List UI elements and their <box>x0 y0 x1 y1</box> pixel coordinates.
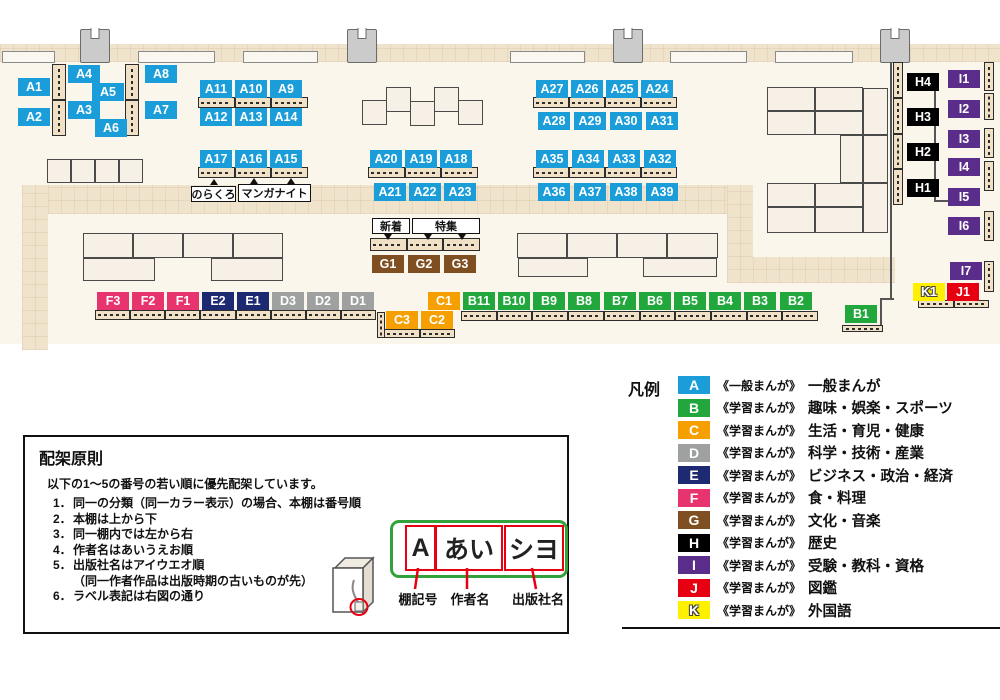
shelf-label-G2: G2 <box>408 255 440 273</box>
shelf-label-A2: A2 <box>18 108 50 126</box>
bookshelf-segment <box>984 62 994 91</box>
reading-table <box>233 233 283 258</box>
bookshelf-segment <box>842 325 883 332</box>
shelf-label-H4: H4 <box>907 73 939 91</box>
wall-window <box>510 51 585 63</box>
shelf-label-D1: D1 <box>342 292 374 310</box>
pillar-notch <box>891 28 900 39</box>
legend: 凡例 A《一般まんが》一般まんがB《学習まんが》趣味・娯楽・スポーツC《学習まん… <box>622 368 1000 630</box>
wall-window <box>2 51 55 63</box>
legend-series-type: 《学習まんが》 <box>717 534 801 551</box>
shelf-label-A25: A25 <box>606 80 638 98</box>
label-example-caption: 棚記号 <box>398 589 437 608</box>
reading-table <box>47 159 71 183</box>
legend-category-label: 生活・育児・健康 <box>808 420 924 441</box>
shelf-label-A23: A23 <box>444 183 476 201</box>
reading-table <box>183 233 233 258</box>
shelf-label-A15: A15 <box>270 150 302 168</box>
shelf-label-C3: C3 <box>386 311 418 329</box>
shelf-label-B8: B8 <box>568 292 600 310</box>
shelf-label-A39: A39 <box>646 183 678 201</box>
bookshelf-segment <box>568 311 604 321</box>
shelf-label-A13: A13 <box>235 108 267 126</box>
label-example-part: シヨ <box>504 525 564 571</box>
shelf-label-A12: A12 <box>200 108 232 126</box>
shelf-label-D3: D3 <box>272 292 304 310</box>
shelf-label-A6: A6 <box>95 119 127 137</box>
reading-table <box>567 233 617 258</box>
rule-text: 同一の分類（同一カラー表示）の場合、本棚は番号順 <box>73 496 361 510</box>
rule-text: 本棚は上から下 <box>73 512 157 526</box>
legend-category-label: 外国語 <box>808 600 852 621</box>
bookshelf-segment <box>130 310 165 320</box>
legend-category-label: 食・料理 <box>808 487 866 508</box>
reading-table <box>517 233 567 258</box>
reading-table <box>83 233 133 258</box>
bookshelf-segment <box>235 97 272 108</box>
legend-category-label: 受験・教科・資格 <box>808 555 924 576</box>
shelf-label-B5: B5 <box>674 292 706 310</box>
reading-table <box>643 258 717 277</box>
bookshelf <box>368 167 478 178</box>
shelf-label-A26: A26 <box>571 80 603 98</box>
bookshelf <box>125 64 139 136</box>
legend-item-C: C《学習まんが》生活・育児・健康 <box>678 420 924 440</box>
rule-text: 作者名はあいうえお順 <box>73 543 193 557</box>
wall-line <box>880 298 894 300</box>
shelf-label-A24: A24 <box>641 80 673 98</box>
bookshelf-segment <box>405 167 442 178</box>
legend-underline <box>622 627 1000 629</box>
bookshelf-segment <box>533 97 569 108</box>
bookshelf-segment <box>341 310 376 320</box>
legend-category-label: 趣味・娯楽・スポーツ <box>808 397 953 418</box>
bookshelf <box>533 167 677 178</box>
shelf-label-A22: A22 <box>409 183 441 201</box>
reading-table <box>767 183 815 207</box>
rule-number: 6． <box>53 589 73 605</box>
pillar <box>880 29 910 63</box>
legend-category-label: 図鑑 <box>808 577 837 598</box>
bookshelf-segment <box>984 93 994 120</box>
shelf-label-A8: A8 <box>145 65 177 83</box>
legend-color-chip: G <box>678 511 710 529</box>
shelving-principles-panel: 配架原則 以下の1～5の番号の若い順に優先配架しています。 1．同一の分類（同一… <box>23 435 569 634</box>
reading-table <box>815 183 863 207</box>
legend-series-type: 《学習まんが》 <box>717 512 801 529</box>
legend-item-A: A《一般まんが》一般まんが <box>678 375 881 395</box>
bookshelf-segment <box>198 97 235 108</box>
bookshelf-segment <box>420 329 456 338</box>
legend-item-J: J《学習まんが》図鑑 <box>678 578 837 598</box>
shelf-label-I5: I5 <box>948 188 980 206</box>
legend-series-type: 《一般まんが》 <box>717 377 801 394</box>
map-note-新着: 新着 <box>372 218 410 234</box>
bookshelf <box>95 310 376 320</box>
shelf-label-H3: H3 <box>907 108 939 126</box>
shelf-label-A17: A17 <box>200 150 232 168</box>
bookshelf-segment <box>893 98 903 134</box>
shelf-label-F1: F1 <box>167 292 199 310</box>
principles-rule: 1．同一の分類（同一カラー表示）の場合、本棚は番号順 <box>53 496 361 512</box>
shelf-label-A30: A30 <box>610 112 642 130</box>
legend-item-B: B《学習まんが》趣味・娯楽・スポーツ <box>678 398 953 418</box>
legend-series-type: 《学習まんが》 <box>717 422 801 439</box>
bookshelf <box>984 62 994 91</box>
legend-color-chip: H <box>678 534 710 552</box>
wall-window <box>138 51 215 63</box>
bookshelf-segment <box>306 310 341 320</box>
shelf-label-A1: A1 <box>18 78 50 96</box>
bookshelf-segment <box>532 311 568 321</box>
legend-color-chip: F <box>678 489 710 507</box>
note-pointer <box>424 234 432 240</box>
reading-table <box>767 207 815 233</box>
rule-text: 同一棚内では左から右 <box>73 527 193 541</box>
legend-series-type: 《学習まんが》 <box>717 602 801 619</box>
shelf-label-A27: A27 <box>536 80 568 98</box>
reading-table <box>362 100 387 125</box>
bookshelf <box>984 128 994 158</box>
bookshelf <box>918 300 989 308</box>
bookshelf-segment <box>497 311 533 321</box>
bookshelf-segment <box>271 167 308 178</box>
shelf-label-B11: B11 <box>463 292 495 310</box>
reading-table <box>815 111 863 135</box>
book-illustration <box>325 552 379 618</box>
legend-category-label: 一般まんが <box>808 375 881 396</box>
reading-table <box>434 87 459 112</box>
shelf-label-A5: A5 <box>92 83 124 101</box>
map-note-マンガナイト: マンガナイト <box>238 184 311 202</box>
reading-table <box>863 135 888 183</box>
principles-rule: 4．作者名はあいうえお順 <box>53 543 361 559</box>
pillar-notch <box>91 28 100 39</box>
rule-number: 2． <box>53 512 73 528</box>
bookshelf-segment <box>441 167 478 178</box>
shelf-label-K1: K1 <box>913 283 945 301</box>
bookshelf-segment <box>893 62 903 98</box>
bookshelf-segment <box>271 97 308 108</box>
bookshelf-segment <box>125 100 139 136</box>
bookshelf-segment <box>984 161 994 191</box>
label-example-caption: 作者名 <box>450 589 489 608</box>
principles-rules-list: 1．同一の分類（同一カラー表示）の場合、本棚は番号順2．本棚は上から下3．同一棚… <box>53 496 361 605</box>
shelf-label-A37: A37 <box>574 183 606 201</box>
legend-color-chip: K <box>678 601 710 619</box>
shelf-label-A4: A4 <box>68 65 100 83</box>
reading-table <box>133 233 183 258</box>
wall-window <box>670 51 747 63</box>
shelf-label-A29: A29 <box>574 112 606 130</box>
bookshelf-segment <box>893 134 903 170</box>
reading-table <box>518 258 588 277</box>
shelf-label-B2: B2 <box>780 292 812 310</box>
shelf-label-B9: B9 <box>533 292 565 310</box>
bookshelf-segment <box>235 167 272 178</box>
note-pointer <box>287 178 295 184</box>
shelf-label-H1: H1 <box>907 179 939 197</box>
bookshelf-segment <box>747 311 783 321</box>
shelf-label-B7: B7 <box>604 292 636 310</box>
shelf-label-I4: I4 <box>948 158 980 176</box>
reading-table <box>815 87 863 111</box>
legend-series-type: 《学習まんが》 <box>717 444 801 461</box>
legend-item-I: I《学習まんが》受験・教科・資格 <box>678 555 924 575</box>
bookshelf <box>384 329 455 338</box>
bookshelf-segment <box>984 261 994 292</box>
bookshelf <box>533 97 677 108</box>
shelf-label-A35: A35 <box>536 150 568 168</box>
bookshelf-segment <box>675 311 711 321</box>
legend-color-chip: J <box>678 579 710 597</box>
bookshelf-segment <box>605 97 641 108</box>
legend-series-type: 《学習まんが》 <box>717 399 801 416</box>
wall-line <box>890 62 892 300</box>
shelf-label-C2: C2 <box>421 311 453 329</box>
bookshelf <box>842 325 883 332</box>
principles-rule: 3．同一棚内では左から右 <box>53 527 361 543</box>
shelf-label-A21: A21 <box>374 183 406 201</box>
principles-rule: （同一作者作品は出版時期の古いものが先） <box>53 574 361 590</box>
shelf-label-A14: A14 <box>270 108 302 126</box>
rule-text: ラベル表記は右図の通り <box>73 589 205 603</box>
legend-series-type: 《学習まんが》 <box>717 557 801 574</box>
legend-series-type: 《学習まんが》 <box>717 579 801 596</box>
bookshelf-segment <box>95 310 130 320</box>
bookshelf <box>893 62 903 205</box>
shelf-label-A38: A38 <box>610 183 642 201</box>
bookshelf <box>198 167 308 178</box>
bookshelf <box>984 161 994 191</box>
map-note-特集: 特集 <box>412 218 480 234</box>
rule-number: 3． <box>53 527 73 543</box>
pillar-notch <box>358 28 367 39</box>
bookshelf-segment <box>569 97 605 108</box>
reading-table <box>71 159 95 183</box>
bookshelf-segment <box>893 169 903 205</box>
bookshelf-segment <box>918 300 954 308</box>
bookshelf-segment <box>954 300 990 308</box>
walkway-carpet <box>22 185 48 350</box>
rule-number: 1． <box>53 496 73 512</box>
note-pointer <box>210 179 218 185</box>
bookshelf-segment <box>384 329 420 338</box>
legend-color-chip: B <box>678 399 710 417</box>
legend-series-type: 《学習まんが》 <box>717 489 801 506</box>
shelf-label-A3: A3 <box>68 101 100 119</box>
bookshelf-segment <box>569 167 605 178</box>
shelf-label-A36: A36 <box>538 183 570 201</box>
legend-color-chip: E <box>678 466 710 484</box>
reading-table <box>767 111 815 135</box>
pillar <box>347 29 377 63</box>
legend-series-type: 《学習まんが》 <box>717 467 801 484</box>
shelf-label-I2: I2 <box>948 100 980 118</box>
rule-number: 5． <box>53 558 73 574</box>
shelf-label-H2: H2 <box>907 143 939 161</box>
reading-table <box>863 183 888 233</box>
legend-item-D: D《学習まんが》科学・技術・産業 <box>678 443 924 463</box>
library-floor-map-page: のらくろマンガナイト新着特集A1A2A4A5A3A6A8A7A11A10A9A1… <box>0 0 1000 700</box>
principles-rule: 5．出版社名はアイウエオ順 <box>53 558 361 574</box>
bookshelf <box>198 97 308 108</box>
reading-table <box>767 87 815 111</box>
shelf-label-E1: E1 <box>237 292 269 310</box>
legend-item-H: H《学習まんが》歴史 <box>678 533 837 553</box>
reading-table <box>95 159 119 183</box>
wall-window <box>775 51 853 63</box>
shelf-label-I7: I7 <box>950 262 982 280</box>
legend-item-G: G《学習まんが》文化・音楽 <box>678 510 881 530</box>
bookshelf <box>984 261 994 292</box>
reading-table <box>667 233 718 258</box>
bookshelf-segment <box>198 167 235 178</box>
bookshelf-segment <box>368 167 405 178</box>
bookshelf <box>461 311 818 321</box>
bookshelf-segment <box>984 128 994 158</box>
shelf-label-G3: G3 <box>444 255 476 273</box>
rule-text: 出版社名はアイウエオ順 <box>73 558 204 572</box>
bookshelf-segment <box>640 311 676 321</box>
bookshelf-segment <box>782 311 818 321</box>
bookshelf-segment <box>165 310 200 320</box>
shelf-label-A34: A34 <box>572 150 604 168</box>
shelf-label-C1: C1 <box>428 292 460 310</box>
shelf-label-A16: A16 <box>235 150 267 168</box>
rule-text: （同一作者作品は出版時期の古いものが先） <box>73 574 313 588</box>
shelf-label-A19: A19 <box>405 150 437 168</box>
reading-table <box>119 159 143 183</box>
bookshelf-segment <box>461 311 497 321</box>
legend-title: 凡例 <box>628 376 660 400</box>
principles-intro: 以下の1～5の番号の若い順に優先配架しています。 <box>47 475 323 492</box>
reading-table <box>863 88 888 135</box>
legend-category-label: 文化・音楽 <box>808 510 881 531</box>
note-pointer <box>384 234 392 240</box>
reading-table <box>410 101 435 126</box>
reading-table <box>815 207 863 233</box>
shelf-label-G1: G1 <box>372 255 404 273</box>
legend-category-label: 歴史 <box>808 532 837 553</box>
walkway-carpet <box>727 257 895 283</box>
bookshelf-segment <box>125 64 139 100</box>
bookshelf-segment <box>533 167 569 178</box>
shelf-label-A31: A31 <box>646 112 678 130</box>
legend-color-chip: A <box>678 376 710 394</box>
reading-table <box>83 258 155 281</box>
shelf-label-A7: A7 <box>145 101 177 119</box>
wall-window <box>243 51 318 63</box>
shelf-label-A18: A18 <box>440 150 472 168</box>
shelf-label-I6: I6 <box>948 217 980 235</box>
shelf-label-A28: A28 <box>538 112 570 130</box>
label-example-part: あい <box>435 525 503 571</box>
shelf-label-B10: B10 <box>498 292 530 310</box>
legend-category-label: 科学・技術・産業 <box>808 442 924 463</box>
legend-category-label: ビジネス・政治・経済 <box>808 465 953 486</box>
legend-item-E: E《学習まんが》ビジネス・政治・経済 <box>678 465 953 485</box>
bookshelf <box>984 211 994 241</box>
legend-color-chip: I <box>678 556 710 574</box>
map-note-のらくろ: のらくろ <box>191 186 236 202</box>
shelf-label-B1: B1 <box>845 305 877 323</box>
shelf-label-I1: I1 <box>948 70 980 88</box>
reading-table <box>458 100 483 125</box>
shelf-label-A33: A33 <box>608 150 640 168</box>
bookshelf-segment <box>604 311 640 321</box>
bookshelf-segment <box>641 97 677 108</box>
reading-table <box>211 258 283 281</box>
rule-number: 4． <box>53 543 73 559</box>
bookshelf-segment <box>236 310 271 320</box>
pillar-notch <box>624 28 633 39</box>
note-pointer <box>250 178 258 184</box>
bookshelf-segment <box>711 311 747 321</box>
pillar <box>80 29 110 63</box>
legend-item-F: F《学習まんが》食・料理 <box>678 488 866 508</box>
shelf-label-F3: F3 <box>97 292 129 310</box>
legend-item-K: K《学習まんが》外国語 <box>678 600 852 620</box>
shelf-label-B3: B3 <box>744 292 776 310</box>
bookshelf-segment <box>52 64 66 100</box>
shelf-label-A20: A20 <box>370 150 402 168</box>
pillar <box>613 29 643 63</box>
wall-line <box>880 300 882 325</box>
bookshelf-segment <box>200 310 235 320</box>
shelf-label-J1: J1 <box>947 283 979 301</box>
bookshelf-segment <box>641 167 677 178</box>
reading-table <box>386 87 411 112</box>
shelf-label-D2: D2 <box>307 292 339 310</box>
shelf-label-A11: A11 <box>200 80 232 98</box>
bookshelf-segment <box>271 310 306 320</box>
note-pointer <box>458 234 466 240</box>
wall-line <box>934 200 949 202</box>
legend-color-chip: D <box>678 444 710 462</box>
shelf-label-A10: A10 <box>235 80 267 98</box>
label-example-part: A <box>405 525 436 571</box>
bookshelf <box>984 93 994 120</box>
bookshelf-segment <box>605 167 641 178</box>
reading-table <box>617 233 667 258</box>
bookshelf-segment <box>984 211 994 241</box>
shelf-label-A9: A9 <box>270 80 302 98</box>
shelf-label-E2: E2 <box>202 292 234 310</box>
principles-rule: 2．本棚は上から下 <box>53 512 361 528</box>
principles-rule: 6．ラベル表記は右図の通り <box>53 589 361 605</box>
shelf-label-B4: B4 <box>709 292 741 310</box>
reading-table <box>840 135 863 183</box>
principles-title: 配架原則 <box>39 445 103 469</box>
shelf-label-I3: I3 <box>948 130 980 148</box>
shelf-label-B6: B6 <box>639 292 671 310</box>
legend-color-chip: C <box>678 421 710 439</box>
shelf-label-A32: A32 <box>644 150 676 168</box>
shelf-label-F2: F2 <box>132 292 164 310</box>
bookshelf-segment <box>52 100 66 136</box>
label-example-caption: 出版社名 <box>512 589 564 608</box>
bookshelf <box>52 64 66 136</box>
